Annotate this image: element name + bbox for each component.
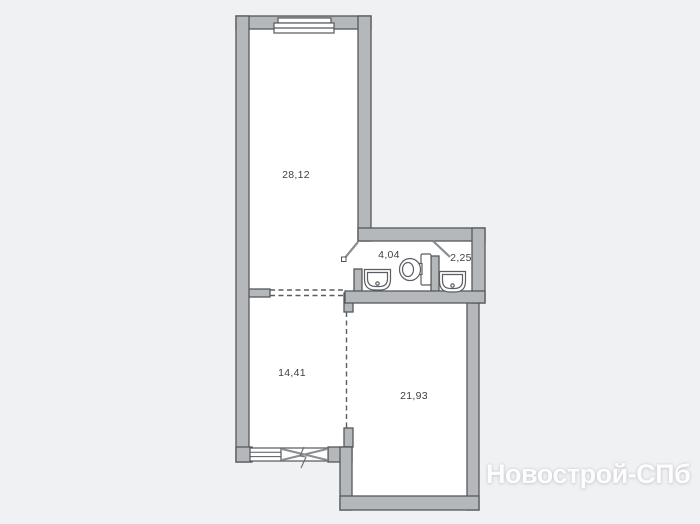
watermark-text: Новострой-СПб [486, 459, 690, 490]
balcony-unit-bottom [250, 447, 328, 468]
wall-partition-bathroom [431, 256, 439, 292]
floorplan-drawing [0, 0, 700, 524]
area-label-bathroom: 2,25 [450, 252, 472, 264]
wall-bathroom-bottom [345, 291, 485, 303]
sink-icon [440, 272, 466, 293]
sink-drain [376, 282, 379, 285]
door-leaf-hallway-cap [342, 257, 347, 262]
wall-room-bottom-right-bottom [340, 496, 479, 510]
toilet-bowl-inner [403, 263, 414, 277]
area-label-room-bottom-left: 14,41 [278, 367, 306, 379]
area-label-room-bottom-right: 21,93 [400, 390, 428, 402]
sink-drain [451, 284, 454, 287]
wall-right-upper [358, 16, 371, 241]
window-top-outer-sill [278, 18, 331, 23]
area-label-room-top: 28,12 [282, 169, 310, 181]
floorplan-canvas: 28,12 4,04 2,25 14,41 21,93 Новострой-СП… [0, 0, 700, 524]
wall-stub-divider-bottom [344, 428, 353, 447]
wall-stub-hallway-sink [354, 269, 362, 292]
wall-left [236, 16, 249, 462]
sink-icon [365, 270, 391, 291]
floor-room-top [243, 23, 371, 296]
window-top [274, 18, 334, 33]
wall-bathroom-top [358, 228, 485, 241]
wall-room-right-lower [467, 293, 479, 510]
area-label-hallway: 4,04 [378, 249, 400, 261]
